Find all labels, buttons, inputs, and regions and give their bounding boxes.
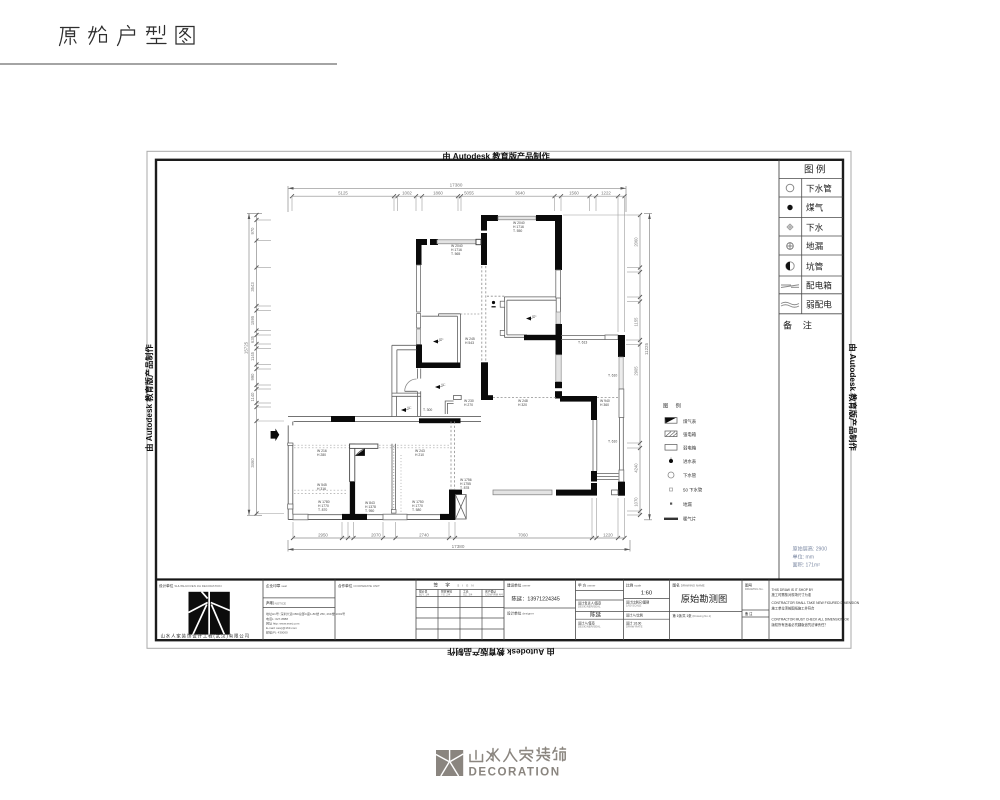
svg-text:1220: 1220	[603, 532, 613, 537]
svg-text:17380: 17380	[452, 544, 465, 549]
svg-text:DECORATION: DECORATION	[469, 766, 561, 779]
svg-text:弱配电: 弱配电	[806, 298, 832, 309]
svg-text:进水表: 进水表	[683, 458, 697, 465]
svg-text:声明 NOTICE: 声明 NOTICE	[266, 601, 286, 606]
svg-text:E-mail: sssrj@163.com: E-mail: sssrj@163.com	[266, 626, 297, 630]
svg-text:15725: 15725	[243, 341, 248, 354]
svg-text:YS. 2/4: YS. 2/4	[441, 593, 451, 597]
svg-text:合作单位 COOPERATE UNIT: 合作单位 COOPERATE UNIT	[338, 583, 380, 588]
svg-text:GZ. 3/4: GZ. 3/4	[463, 593, 473, 597]
svg-text:THIS DRAW IS IT SHOP BY: THIS DRAW IS IT SHOP BY	[772, 588, 815, 592]
svg-text:2060: 2060	[634, 237, 639, 247]
svg-text:下水管: 下水管	[683, 472, 697, 479]
svg-text:设计单位 designer: 设计单位 designer	[507, 611, 534, 616]
svg-text:H 316: H 316	[317, 487, 326, 491]
svg-text:990: 990	[250, 373, 255, 381]
svg-text:坑管: 坑管	[806, 260, 824, 271]
svg-text:970: 970	[250, 227, 255, 235]
svg-text:2740: 2740	[419, 532, 429, 537]
svg-text:T. 950: T. 950	[365, 509, 374, 513]
svg-text:2950: 2950	[318, 532, 328, 537]
svg-text:BJY. 1/4: BJY. 1/4	[419, 593, 430, 597]
svg-text:配电箱: 配电箱	[806, 279, 832, 290]
svg-text:备 注: 备 注	[783, 320, 816, 331]
svg-text:备 注: 备 注	[745, 611, 753, 616]
svg-text:DESIGNER/SEAL: DESIGNER/SEAL	[578, 625, 601, 629]
svg-text:CONTRACTOR SHALL TAKE NEW FIGU: CONTRACTOR SHALL TAKE NEW FIGURED DIMENS…	[772, 601, 860, 605]
svg-text:甲 方 owner: 甲 方 owner	[578, 583, 595, 588]
svg-text:1070: 1070	[634, 497, 639, 507]
svg-text:电话L: 027-8888: 电话L: 027-8888	[266, 616, 288, 621]
svg-text:H 270: H 270	[464, 403, 473, 407]
svg-text:CONTRACTOR MUST CHECK ALL DIME: CONTRACTOR MUST CHECK ALL DIMENSION OK	[772, 618, 850, 622]
svg-text:H 210: H 210	[415, 453, 424, 457]
svg-text:635: 635	[250, 335, 255, 343]
svg-text:DESIGNER/SEAL: DESIGNER/SEAL	[578, 605, 601, 609]
svg-text:设计人/比例: 设计人/比例	[626, 613, 643, 618]
svg-text:施工时需核对现场尺寸为准: 施工时需核对现场尺寸为准	[772, 592, 812, 597]
svg-text:施工单位须按图纸施工并符合: 施工单位须按图纸施工并符合	[772, 606, 816, 611]
svg-text:T. 565: T. 565	[451, 252, 460, 256]
svg-text:原始层高: 2900: 原始层高: 2900	[793, 546, 828, 553]
svg-text:原始勘测图: 原始勘测图	[681, 593, 728, 604]
svg-text:3460: 3460	[250, 458, 255, 468]
svg-text:煤气: 煤气	[806, 201, 824, 212]
svg-text:2905: 2905	[634, 366, 639, 376]
svg-text:网址 http: www.sssrj.com: 网址 http: www.sssrj.com	[266, 621, 300, 626]
svg-text:地漏: 地漏	[806, 240, 824, 251]
svg-text:地址H1号: 深圳大道CBD总部C座1-8F楼 25F, 2: 地址H1号: 深圳大道CBD总部C座1-8F楼 25F, 26F楼 1001号	[266, 611, 345, 616]
svg-text:由 Autodesk 教育版产品制作: 由 Autodesk 教育版产品制作	[144, 344, 154, 452]
svg-text:由 Autodesk 教育版产品制作: 由 Autodesk 教育版产品制作	[848, 343, 858, 451]
svg-text:WC.: WC.	[439, 337, 444, 341]
svg-text:1222: 1222	[601, 191, 611, 196]
svg-text:2070: 2070	[371, 532, 381, 537]
svg-text:暖气片: 暖气片	[683, 516, 696, 523]
svg-text:3640: 3640	[515, 191, 525, 196]
svg-text:1/60 SCALE: 1/60 SCALE	[626, 604, 642, 608]
svg-text:设计单位 SHUISHUI REN JIA DECORATI: 设计单位 SHUISHUI REN JIA DECORATION	[159, 583, 222, 588]
svg-text:煤气表: 煤气表	[683, 418, 697, 425]
svg-text:企业印章 seal: 企业印章 seal	[266, 583, 287, 588]
svg-text:版权所有违者必究翻版追究法律责任？: 版权所有违者必究翻版追究法律责任？	[772, 622, 828, 627]
svg-text:DRAWING No.: DRAWING No.	[745, 587, 764, 591]
svg-text:7060: 7060	[518, 532, 528, 537]
svg-text:T. 613: T. 613	[578, 341, 587, 345]
svg-text:面积: 171m²: 面积: 171m²	[793, 562, 821, 569]
svg-text:T. 550: T. 550	[513, 229, 522, 233]
svg-text:17380: 17380	[450, 183, 463, 188]
svg-text:T. 300: T. 300	[423, 408, 432, 412]
svg-text:T. 610: T. 610	[608, 440, 617, 444]
svg-text:签 字 SIGN: 签 字 SIGN	[433, 582, 476, 588]
svg-text:陈延：13971224345: 陈延：13971224345	[512, 594, 560, 602]
svg-text:H 280: H 280	[317, 453, 326, 457]
svg-text:5055: 5055	[464, 191, 474, 196]
svg-text:T. 580: T. 580	[412, 508, 421, 512]
svg-text:WC.: WC.	[532, 314, 537, 318]
svg-text:H 320: H 320	[518, 403, 527, 407]
svg-text:图名 DRAWING NAME: 图名 DRAWING NAME	[673, 583, 705, 588]
svg-text:下水管: 下水管	[806, 182, 832, 193]
svg-text:1140: 1140	[250, 392, 255, 402]
svg-text:下水: 下水	[806, 221, 824, 232]
svg-text:3543: 3543	[250, 282, 255, 292]
svg-text:1002: 1002	[402, 191, 412, 196]
svg-text:H 360: H 360	[600, 403, 609, 407]
svg-text:山水人家装饰设计工程(武汉)有限公司: 山水人家装饰设计工程(武汉)有限公司	[161, 632, 250, 639]
svg-text:由 Autodesk 教育版产品制作: 由 Autodesk 教育版产品制作	[447, 647, 555, 657]
svg-text:H 543: H 543	[465, 341, 474, 345]
svg-text:图 例: 图 例	[663, 402, 684, 410]
svg-text:5125: 5125	[338, 191, 348, 196]
svg-text:50 下水管: 50 下水管	[683, 487, 703, 494]
svg-text:单位: mm: 单位: mm	[793, 554, 815, 561]
svg-text:CONFIRM 4/4: CONFIRM 4/4	[485, 593, 503, 597]
svg-text:WC.: WC.	[441, 383, 446, 387]
svg-text:1155: 1155	[634, 317, 639, 327]
svg-text:T. 870: T. 870	[318, 508, 327, 512]
svg-text:11225: 11225	[644, 343, 649, 355]
svg-text:DRAW RATE: DRAW RATE	[626, 625, 643, 629]
svg-text:T. 610: T. 610	[608, 374, 617, 378]
svg-text:1560: 1560	[569, 191, 579, 196]
svg-text:4240: 4240	[634, 463, 639, 473]
svg-text:强电箱: 强电箱	[683, 431, 697, 438]
svg-text:比例 scale: 比例 scale	[626, 583, 642, 588]
svg-text:由 Autodesk 教育版产品制作: 由 Autodesk 教育版产品制作	[442, 151, 550, 161]
svg-text:1595: 1595	[250, 315, 255, 325]
svg-text:邮编(P): 430000: 邮编(P): 430000	[266, 630, 288, 635]
svg-text:第 1张/共 1张 (Drawing No.1): 第 1张/共 1张 (Drawing No.1)	[673, 613, 712, 618]
svg-text:陈延: 陈延	[590, 611, 602, 619]
svg-text:1145: 1145	[250, 351, 255, 361]
svg-text:弱电箱: 弱电箱	[683, 445, 697, 452]
svg-text:WC.: WC.	[407, 406, 412, 410]
svg-text:图例: 图例	[804, 164, 828, 176]
svg-text:1860: 1860	[433, 191, 443, 196]
svg-text:地漏: 地漏	[683, 501, 692, 508]
svg-text:T. 878: T. 878	[460, 486, 469, 490]
svg-text:1:60: 1:60	[641, 591, 652, 597]
svg-text:建设单位 owner: 建设单位 owner	[507, 583, 531, 588]
